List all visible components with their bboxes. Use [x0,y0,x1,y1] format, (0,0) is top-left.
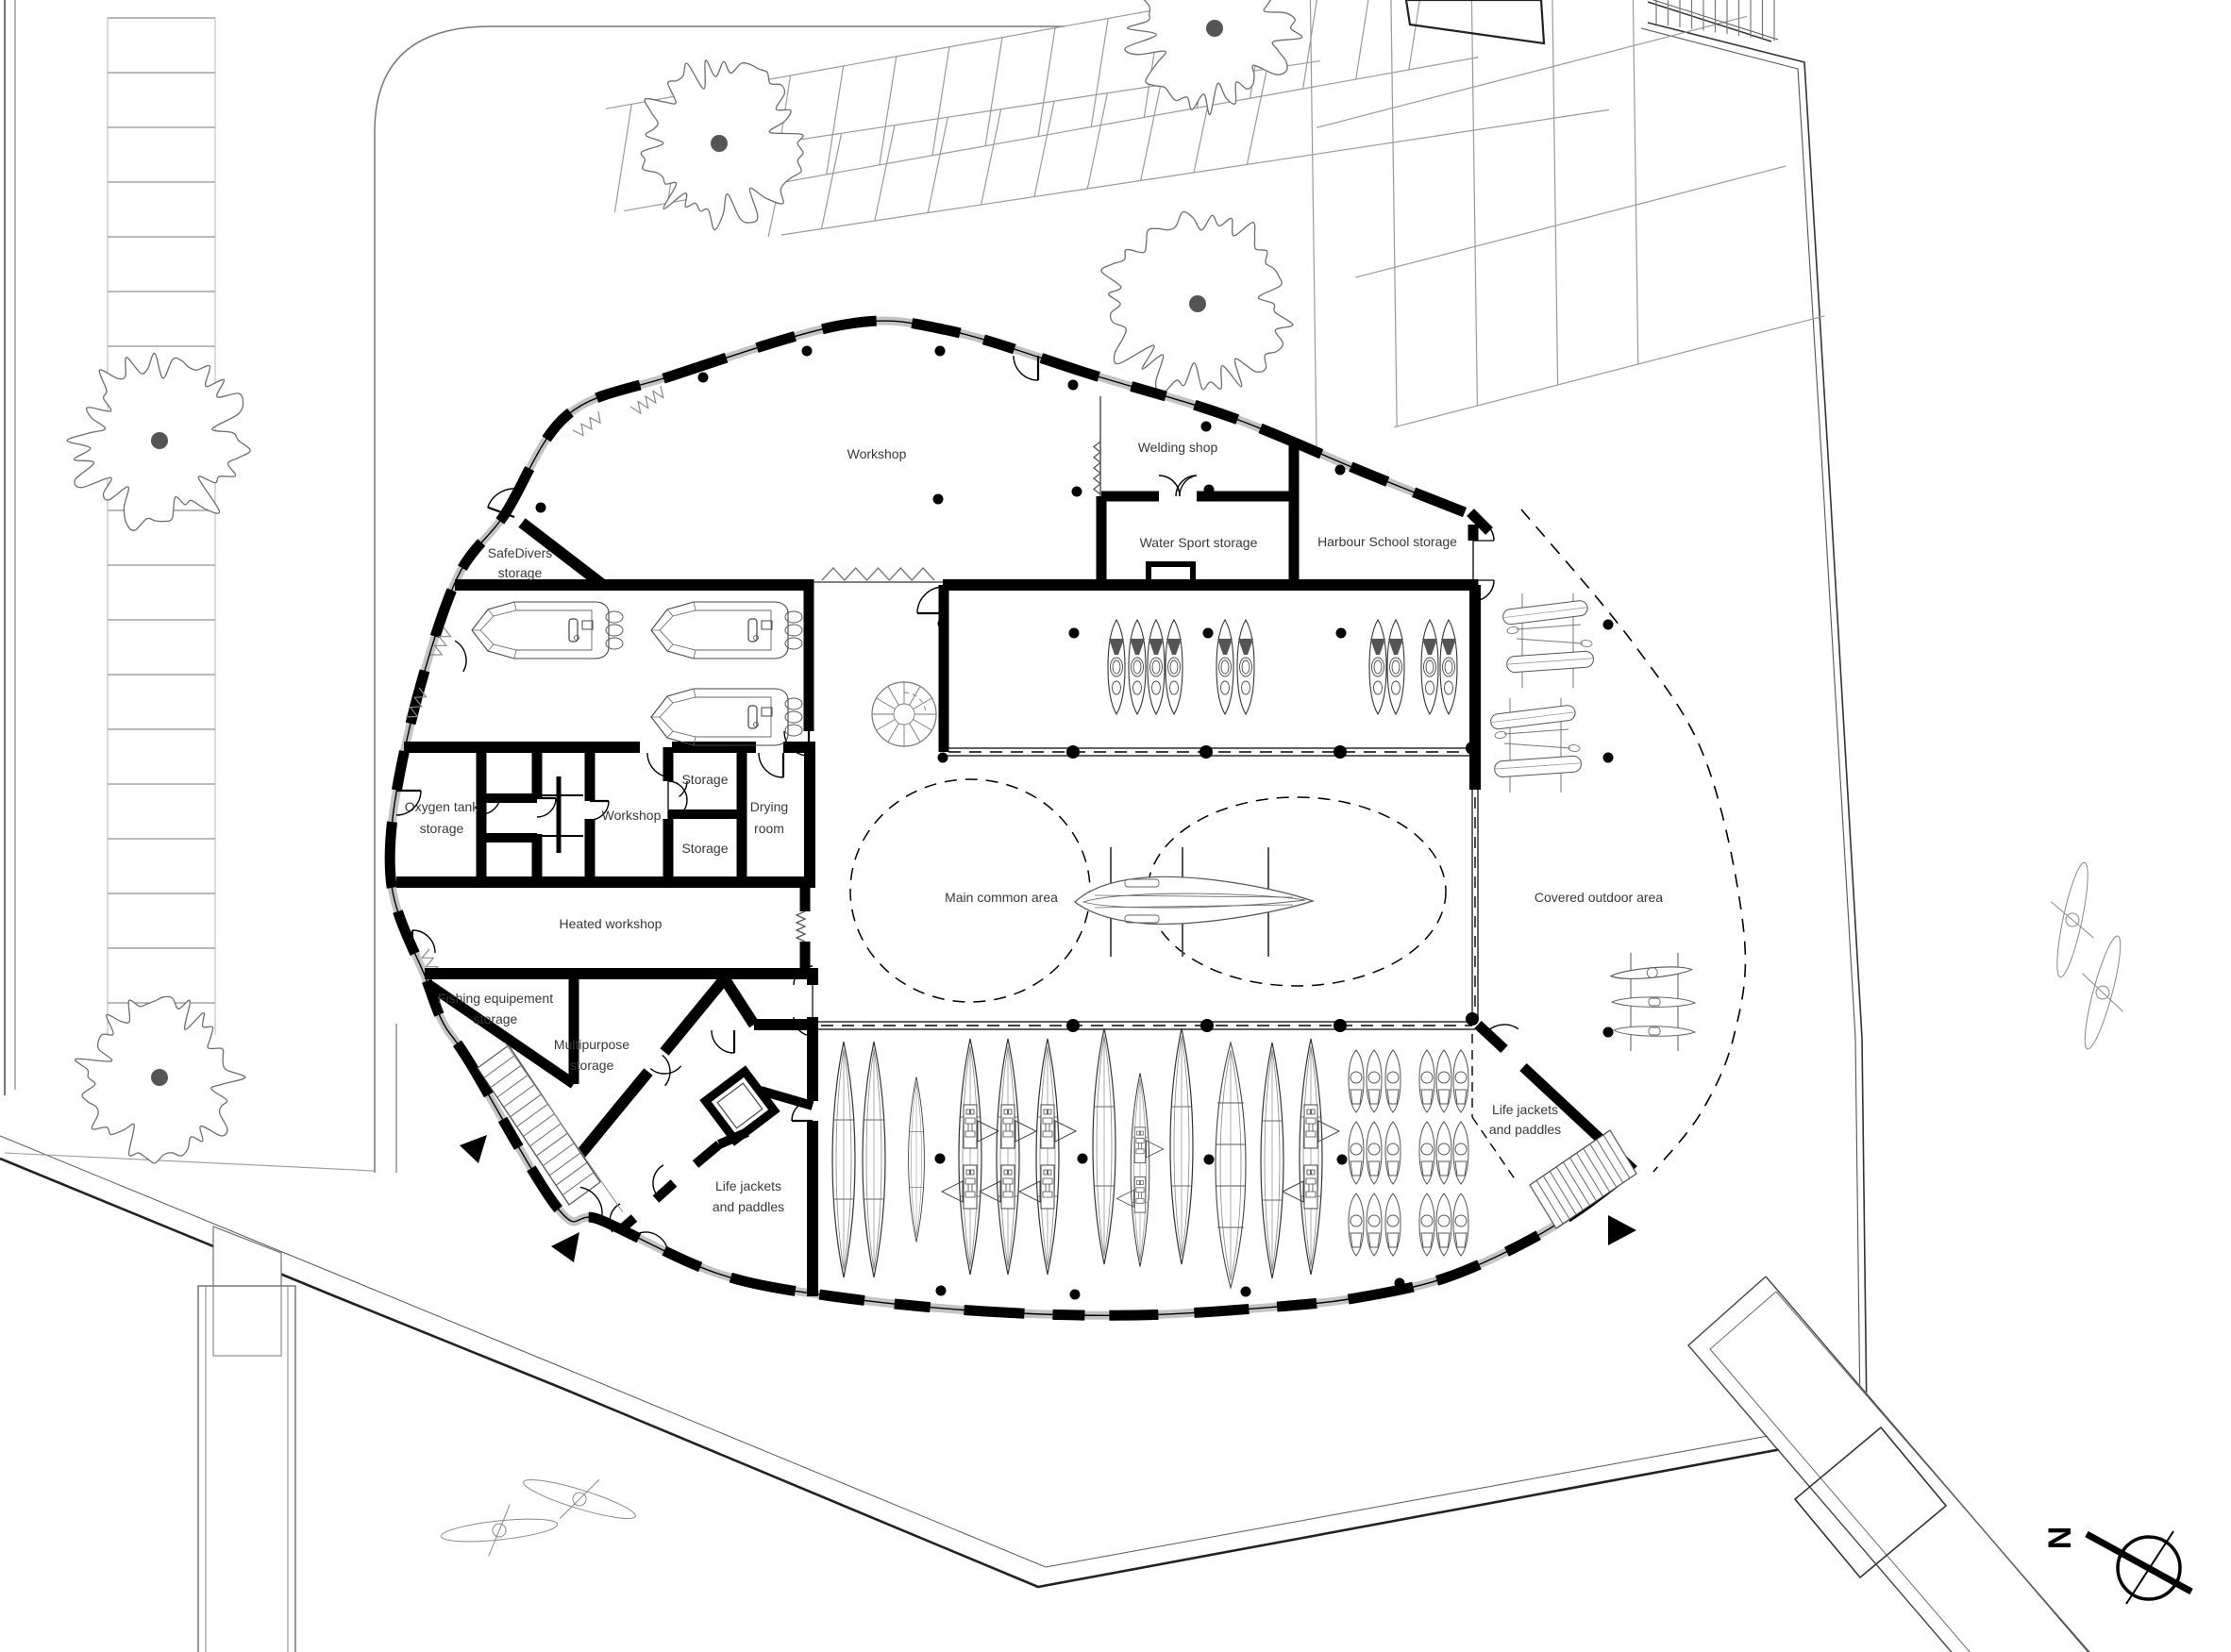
svg-text:Heated workshop: Heated workshop [560,916,663,931]
svg-text:Workshop: Workshop [847,446,907,461]
svg-text:storage: storage [498,565,543,580]
svg-text:storage: storage [570,1058,614,1073]
svg-text:Main common area: Main common area [945,890,1058,905]
svg-text:storage: storage [474,1011,518,1026]
svg-text:Oxygen tank: Oxygen tank [405,799,480,814]
svg-text:Fishing equipement: Fishing equipement [438,991,553,1006]
svg-text:Workshop: Workshop [602,808,662,823]
svg-text:Storage: Storage [681,772,728,787]
svg-text:Welding shop: Welding shop [1138,440,1218,455]
svg-text:storage: storage [420,821,464,836]
svg-text:Life jackets: Life jackets [1492,1102,1558,1117]
svg-text:Covered outdoor area: Covered outdoor area [1535,890,1663,905]
svg-text:and paddles: and paddles [1489,1122,1561,1137]
svg-text:and paddles: and paddles [713,1199,784,1214]
svg-text:Storage: Storage [681,841,728,856]
svg-text:Water Sport storage: Water Sport storage [1140,535,1258,550]
svg-text:Drying: Drying [750,799,788,814]
svg-text:Life jackets: Life jackets [715,1178,781,1193]
svg-text:Multipurpose: Multipurpose [554,1037,629,1052]
svg-text:Harbour School storage: Harbour School storage [1317,534,1457,549]
svg-text:N: N [2042,1527,2078,1550]
svg-text:room: room [754,821,784,836]
svg-text:SafeDivers: SafeDivers [488,545,552,560]
